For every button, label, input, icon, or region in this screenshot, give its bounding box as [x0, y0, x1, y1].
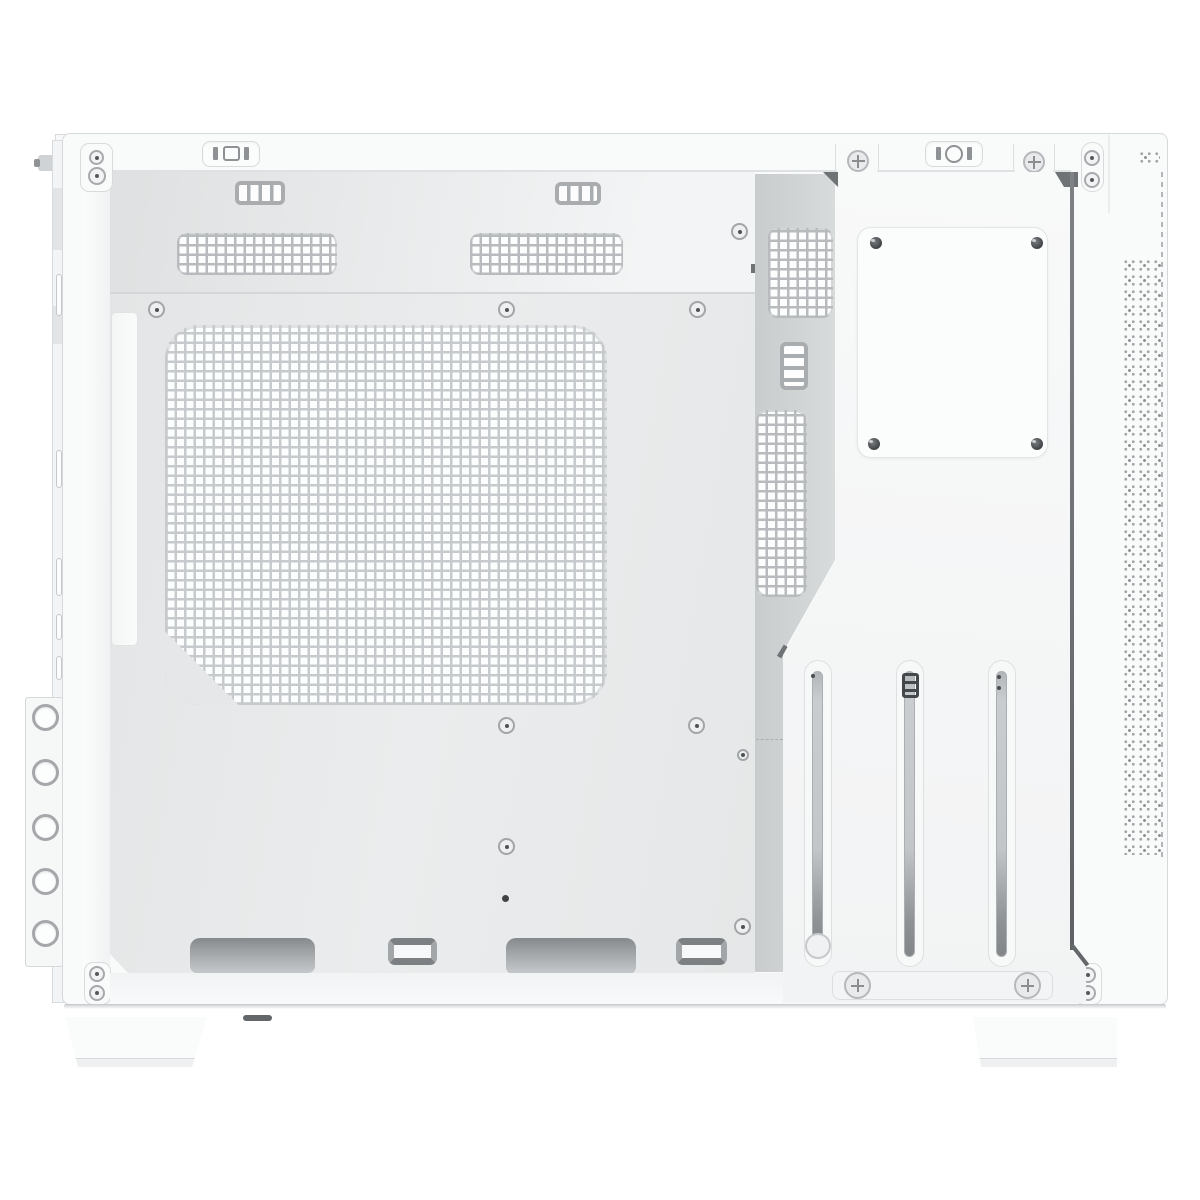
standoff-screw	[498, 838, 515, 855]
top-vent-ladder	[235, 181, 285, 205]
pod-hole	[89, 985, 105, 1001]
standoff-screw	[498, 301, 515, 318]
bracket-screw	[1014, 972, 1041, 999]
recess-dash-line	[756, 739, 783, 740]
slot-mark	[811, 674, 815, 678]
case-bottom-shadow	[64, 1004, 1166, 1009]
thumbscrew-hole	[32, 868, 59, 895]
tray-fold-line	[110, 292, 755, 294]
bracket-screw	[844, 972, 871, 999]
screw-dot	[502, 895, 509, 902]
top-screw	[847, 150, 869, 172]
expansion-slot	[988, 660, 1016, 967]
rear-vent-ladder	[780, 342, 808, 390]
floor-front-rail	[110, 973, 783, 1003]
floor-cable-cutout	[506, 938, 636, 974]
product-photo-canvas	[0, 0, 1200, 1200]
io-stamp-cutout-left	[202, 141, 260, 167]
front-seam-dashed	[1161, 172, 1163, 858]
standoff-screw	[689, 301, 706, 318]
cable-tie-stamp	[676, 938, 727, 965]
top-screw	[1023, 151, 1045, 173]
front-bevel-line	[1108, 135, 1110, 213]
standoff-screw	[688, 717, 705, 734]
top-mesh-strip	[470, 233, 623, 275]
rear-mesh-block	[768, 228, 833, 318]
front-fan-edge	[112, 313, 137, 645]
floor-cable-cutout	[190, 938, 315, 973]
thumbscrew-hole	[32, 704, 59, 731]
fan-mount-mesh	[165, 325, 607, 705]
foot-rubber-base	[973, 1058, 1117, 1067]
slot-opening	[904, 671, 915, 957]
cable-tie-stamp	[388, 938, 437, 965]
front-pillar	[83, 172, 110, 1003]
plate-screw	[870, 237, 882, 249]
top-vent-ladder	[555, 182, 601, 205]
slot-opening	[996, 671, 1007, 957]
pod-hole	[88, 167, 106, 185]
top-mesh-strip	[177, 233, 337, 275]
case-foot-left	[65, 1017, 207, 1067]
io-stamp-cutout-right	[925, 141, 983, 167]
standoff-screw	[734, 918, 751, 935]
stamp-bar-icon	[967, 147, 972, 160]
pod-hole	[89, 966, 105, 982]
slot-mark	[997, 686, 1001, 690]
stamp-bar-icon	[936, 147, 941, 160]
stamp-circle-icon	[945, 145, 963, 163]
stamp-bar-icon	[213, 147, 218, 160]
front-vent-dot-cluster	[1138, 150, 1160, 166]
foot-rubber-base	[65, 1058, 207, 1067]
slot-latch-icon	[902, 673, 919, 698]
standoff-screw	[148, 301, 165, 318]
rear-mesh-block	[756, 410, 807, 597]
slot-thumb-hole	[805, 933, 831, 959]
standoff-screw	[731, 223, 748, 240]
expansion-slot	[804, 660, 832, 967]
pod-hole	[1084, 172, 1100, 188]
stamp-bar-icon	[244, 147, 249, 160]
thumbscrew-hole	[32, 759, 59, 786]
case-foot-right	[973, 1017, 1117, 1067]
plate-screw	[868, 438, 880, 450]
standoff-screw	[498, 717, 515, 734]
slot-mark	[997, 675, 1001, 679]
thumbscrew-hole	[32, 920, 59, 947]
front-vent-mesh	[1122, 258, 1162, 855]
expansion-slot	[896, 660, 924, 967]
pod-hole	[89, 150, 104, 165]
plate-screw	[1031, 237, 1043, 249]
panel-divider-line	[1070, 172, 1074, 950]
pod-hole	[1084, 150, 1100, 166]
standoff-screw	[737, 749, 749, 761]
thumbscrew-hole	[32, 814, 59, 841]
under-case-tab	[243, 1015, 272, 1021]
plate-screw	[1031, 438, 1043, 450]
tray-access-plate	[857, 227, 1048, 458]
ceiling-edge-line	[83, 170, 1071, 172]
stamp-square-icon	[223, 146, 240, 161]
slot-opening	[812, 671, 823, 957]
mesh-chamfer	[165, 631, 239, 705]
